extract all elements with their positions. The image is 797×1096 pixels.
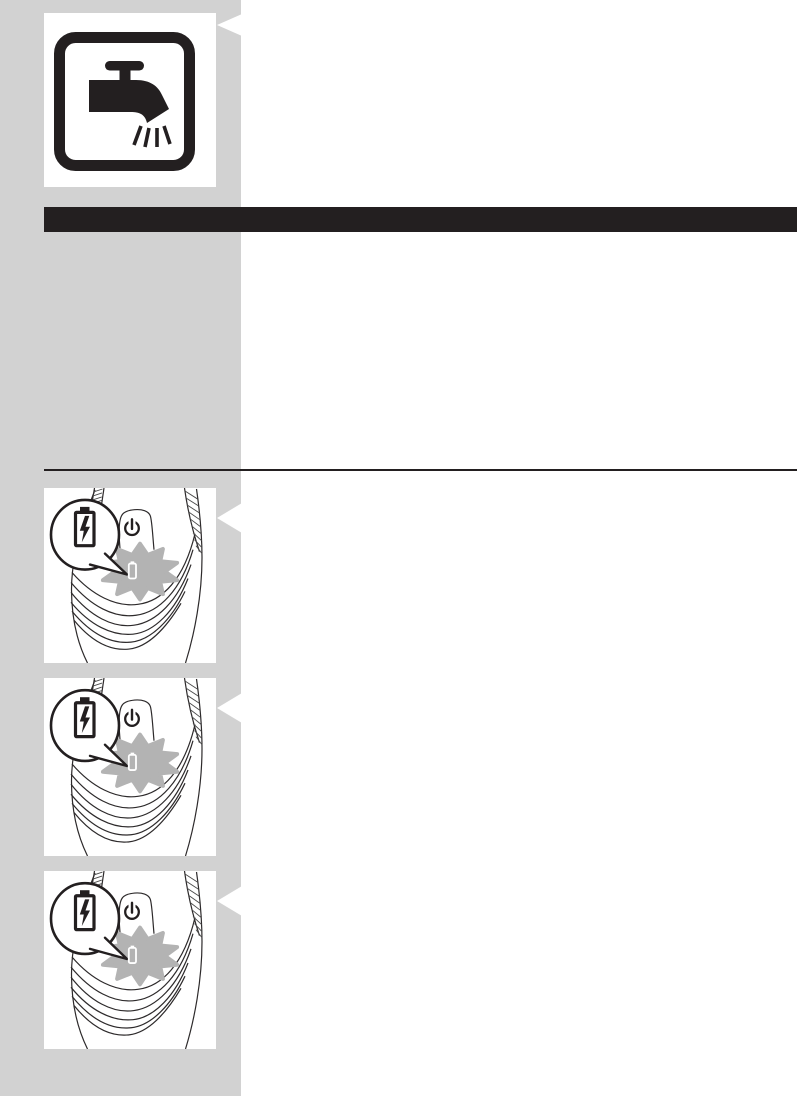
section-divider — [44, 469, 797, 471]
shaver-charging-illustration — [44, 871, 216, 1049]
section-heading-bar — [44, 207, 797, 232]
shaver-charging-illustration — [44, 678, 216, 856]
callout-arrow-washable — [216, 14, 242, 36]
shaver-charging-illustration — [44, 488, 216, 663]
figure-charging-step-1 — [44, 488, 216, 663]
figure-washable — [44, 13, 216, 187]
manual-page — [0, 0, 797, 1096]
tap-running-water-icon — [44, 13, 216, 187]
tap-stem — [120, 68, 131, 82]
figure-charging-step-3 — [44, 871, 216, 1049]
figure-charging-step-2 — [44, 678, 216, 856]
callout-arrow-step-1 — [216, 503, 242, 533]
callout-arrow-step-3 — [216, 886, 242, 916]
callout-arrow-step-2 — [216, 693, 242, 723]
